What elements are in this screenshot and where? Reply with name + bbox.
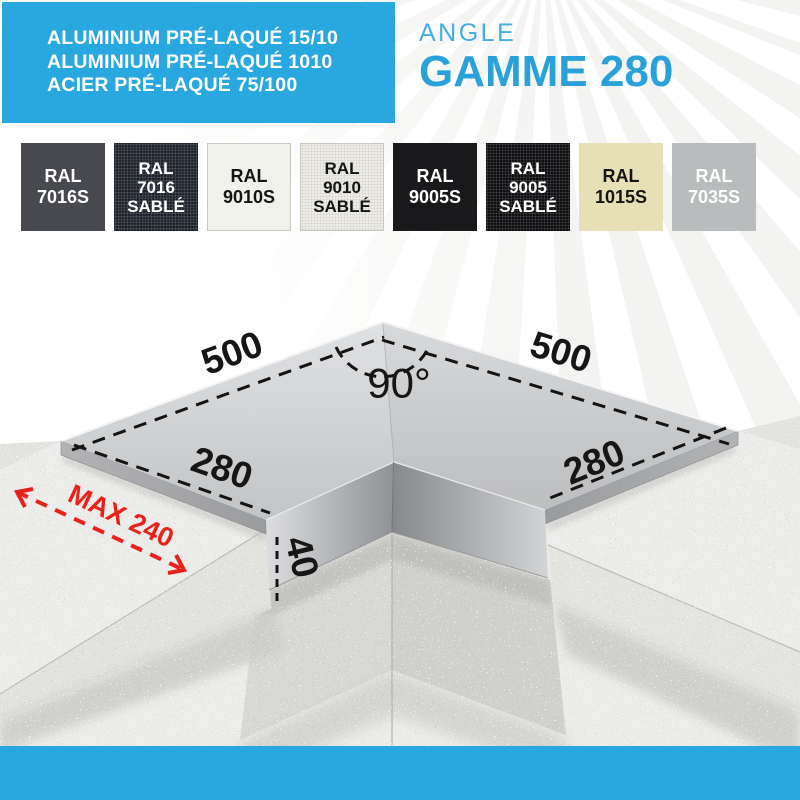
swatch-ral-9005-sable: RAL 9005 SABLÉ bbox=[486, 143, 570, 231]
swatch-label: SABLÉ bbox=[499, 197, 557, 216]
swatch-label: 7016S bbox=[37, 187, 89, 208]
swatch-label: 9010S bbox=[223, 187, 275, 208]
ral-swatch-row: RAL 7016S RAL 7016 SABLÉ RAL 9010S RAL 9… bbox=[21, 143, 756, 231]
swatch-ral-9010s: RAL 9010S bbox=[207, 143, 291, 231]
swatch-label: RAL bbox=[325, 159, 360, 178]
swatch-label: 9005S bbox=[409, 187, 461, 208]
swatch-ral-9010-sable: RAL 9010 SABLÉ bbox=[300, 143, 384, 231]
swatch-label: SABLÉ bbox=[127, 197, 185, 216]
swatch-ral-7016-sable: RAL 7016 SABLÉ bbox=[114, 143, 198, 231]
material-line-3: ACIER PRÉ-LAQUÉ 75/100 bbox=[47, 74, 395, 98]
bottom-accent-bar bbox=[0, 746, 800, 800]
swatch-ral-7035s: RAL 7035S bbox=[672, 143, 756, 231]
swatch-label: RAL bbox=[511, 159, 546, 178]
swatch-label: 7016 bbox=[137, 178, 175, 197]
swatch-label: RAL bbox=[603, 166, 640, 187]
swatch-label: RAL bbox=[696, 166, 733, 187]
swatch-label: RAL bbox=[417, 166, 454, 187]
swatch-label: 7035S bbox=[688, 187, 740, 208]
swatch-ral-7016s: RAL 7016S bbox=[21, 143, 105, 231]
product-title: ANGLE GAMME 280 bbox=[419, 21, 673, 94]
product-title-line1: ANGLE bbox=[419, 21, 673, 46]
material-line-1: ALUMINIUM PRÉ-LAQUÉ 15/10 bbox=[47, 27, 395, 51]
swatch-label: RAL bbox=[231, 166, 268, 187]
material-line-2: ALUMINIUM PRÉ-LAQUÉ 1010 bbox=[47, 51, 395, 75]
dim-angle: 90° bbox=[367, 360, 431, 407]
swatch-label: RAL bbox=[139, 159, 174, 178]
swatch-label: 9005 bbox=[509, 178, 547, 197]
swatch-ral-9005s: RAL 9005S bbox=[393, 143, 477, 231]
swatch-label: 1015S bbox=[595, 187, 647, 208]
swatch-label: RAL bbox=[45, 166, 82, 187]
product-title-line2: GAMME 280 bbox=[419, 50, 673, 94]
swatch-label: 9010 bbox=[323, 178, 361, 197]
materials-banner: ALUMINIUM PRÉ-LAQUÉ 15/10 ALUMINIUM PRÉ-… bbox=[2, 2, 395, 123]
swatch-label: SABLÉ bbox=[313, 197, 371, 216]
swatch-ral-1015s: RAL 1015S bbox=[579, 143, 663, 231]
